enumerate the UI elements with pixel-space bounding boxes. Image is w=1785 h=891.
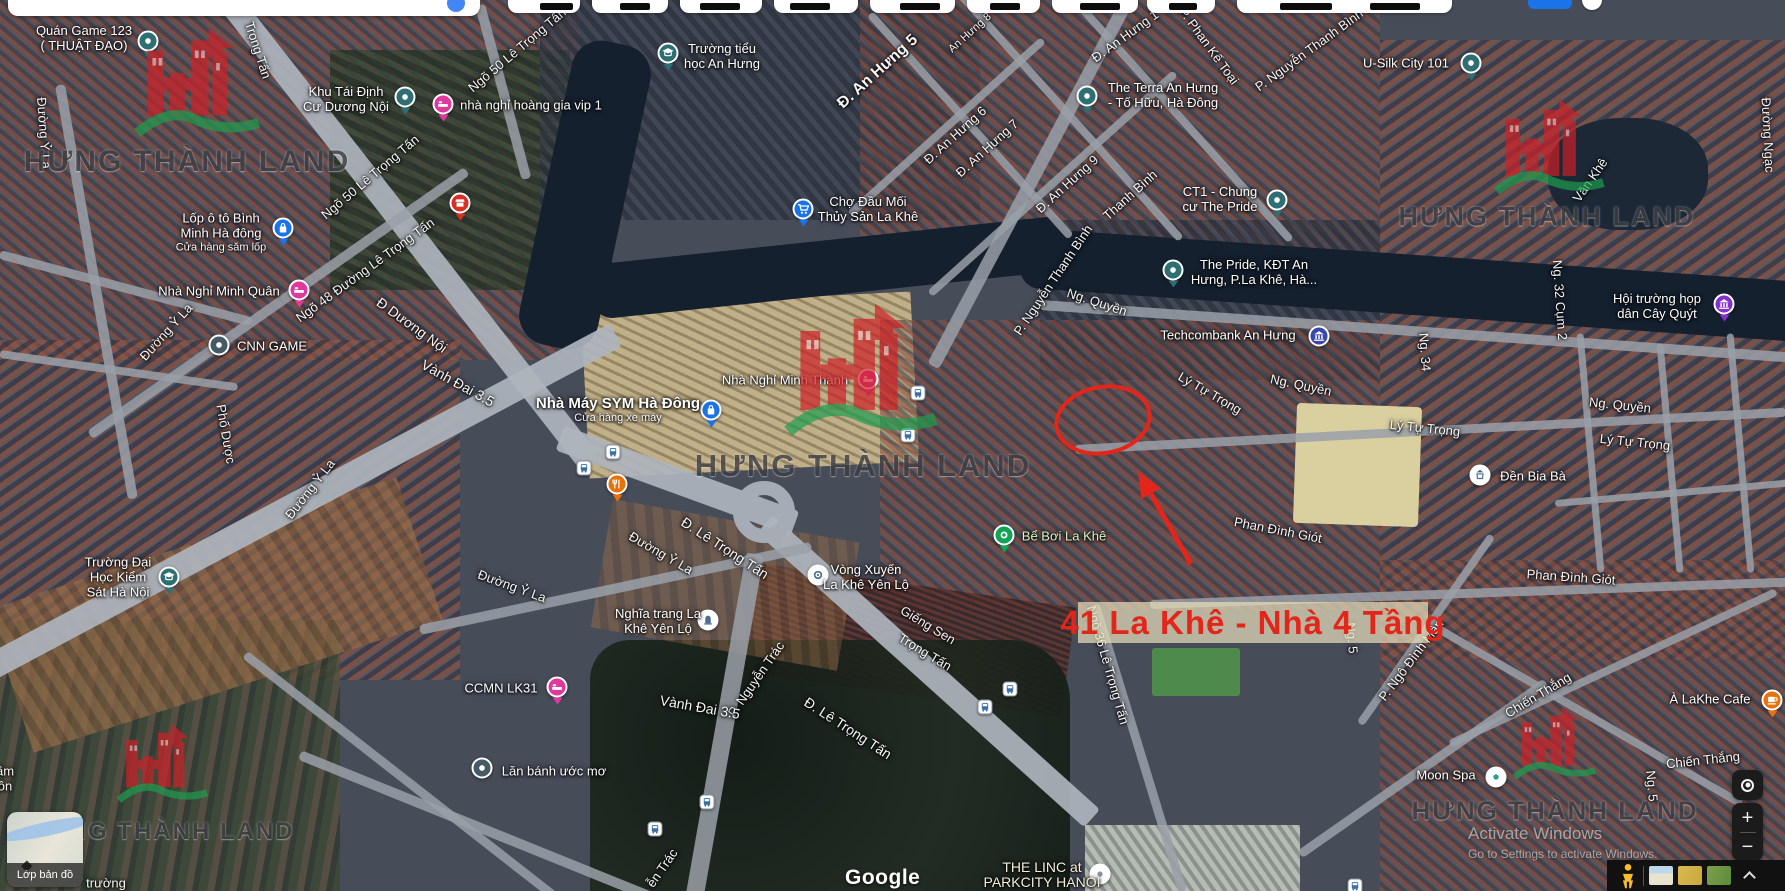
bus-stop-icon[interactable] bbox=[700, 795, 715, 810]
place-pin-icon[interactable] bbox=[395, 87, 416, 108]
poi-label-nha-may-sym-ha-dong[interactable]: Nhà Máy SYM Hà ĐôngCửa hàng xe máy bbox=[536, 396, 700, 426]
top-chip[interactable] bbox=[592, 0, 668, 13]
google-logo[interactable]: Google bbox=[845, 866, 920, 890]
place-dot-icon[interactable] bbox=[209, 335, 230, 356]
top-chip[interactable] bbox=[774, 0, 858, 13]
poi-label-cnn-game[interactable]: CNN GAME bbox=[237, 339, 307, 354]
poi-label-lop-o-to-binh-minh[interactable]: Lốp ô tô BìnhMinh Hà đôngCửa hàng săm lố… bbox=[176, 211, 267, 256]
top-chip[interactable] bbox=[1147, 0, 1215, 13]
poi-label-ct1-chung-cu-the-pride[interactable]: CT1 - Chungcư The Pride bbox=[1183, 184, 1258, 214]
street-label: Ng. 34 bbox=[1416, 332, 1434, 371]
lodging-icon[interactable] bbox=[858, 369, 879, 390]
street-label: Đường Ỷ La bbox=[476, 567, 548, 606]
bus-stop-icon[interactable] bbox=[901, 428, 916, 443]
poi-label-the-linc-parkcity[interactable]: THE LINC atPARKCITY HANOI bbox=[984, 860, 1101, 890]
place-pin-icon[interactable] bbox=[1163, 260, 1184, 281]
place-pin-icon[interactable] bbox=[1077, 86, 1098, 107]
top-button[interactable] bbox=[1582, 0, 1602, 10]
top-chip-active[interactable] bbox=[1528, 0, 1572, 9]
bus-stop-icon[interactable] bbox=[1003, 682, 1018, 697]
poi-label-the-pride-kdt-an-hung[interactable]: The Pride, KĐT AnHưng, P.La Khê, Hà... bbox=[1191, 257, 1317, 287]
school-icon[interactable] bbox=[159, 567, 180, 588]
roundabout bbox=[733, 481, 795, 543]
imagery-thumbnail[interactable] bbox=[1649, 866, 1673, 885]
divider bbox=[1643, 866, 1644, 886]
bank-icon[interactable] bbox=[1309, 326, 1330, 347]
layers-thumbnail bbox=[7, 812, 83, 845]
poi-label-nghia-trang-la-khe-yen-lo[interactable]: Nghĩa trang LaKhê Yên Lộ bbox=[615, 606, 701, 636]
my-location-button[interactable] bbox=[1732, 770, 1763, 800]
temple-icon[interactable] bbox=[1470, 465, 1491, 486]
poi-label-a-lakhe-cafe[interactable]: À LaKhe Cafe bbox=[1670, 692, 1751, 707]
pegman-icon[interactable] bbox=[1619, 863, 1637, 889]
lodging-icon[interactable] bbox=[547, 677, 568, 698]
search-bar[interactable] bbox=[8, 0, 480, 16]
map-texture bbox=[1152, 648, 1240, 696]
shopping-icon[interactable] bbox=[273, 218, 294, 239]
bus-stop-icon[interactable] bbox=[577, 461, 592, 476]
bus-stop-icon[interactable] bbox=[1348, 879, 1363, 891]
community-hall-icon[interactable] bbox=[1714, 294, 1735, 315]
imagery-thumbnail[interactable] bbox=[1707, 866, 1731, 885]
lodging-icon[interactable] bbox=[289, 280, 310, 301]
cafe-icon[interactable] bbox=[1762, 690, 1783, 711]
street-label: Ng. 5 bbox=[1643, 770, 1661, 802]
layers-label: Lớp bản đồ bbox=[7, 863, 83, 887]
poi-label-nha-nghi-minh-thanh[interactable]: Nhà Nghỉ Minh Thành bbox=[722, 373, 848, 388]
poi-label-moon-spa[interactable]: Moon Spa bbox=[1416, 768, 1475, 783]
layers-button[interactable]: ◆ Lớp bản đồ bbox=[7, 812, 83, 887]
activate-windows-text: Activate Windows bbox=[1468, 824, 1602, 844]
street-label: ầm bbox=[0, 764, 14, 779]
top-chip[interactable] bbox=[1237, 0, 1452, 13]
store-icon[interactable] bbox=[450, 193, 471, 214]
spa-icon[interactable] bbox=[1486, 767, 1507, 788]
shopping-icon[interactable] bbox=[701, 400, 722, 421]
satellite-map[interactable]: Đường Ỷ LaTrọng TấnNgõ 50 Lê Trọng TấnNg… bbox=[0, 0, 1785, 891]
activate-windows-subtext: Go to Settings to activate Windows. bbox=[1468, 847, 1657, 861]
poi-label-be-boi-la-khe[interactable]: Bể Bơi La Khê bbox=[1022, 529, 1106, 544]
poi-label-u-silk-city-101[interactable]: U-Silk City 101 bbox=[1363, 56, 1449, 71]
top-chip[interactable] bbox=[870, 0, 955, 13]
place-dot-icon[interactable] bbox=[472, 758, 493, 779]
place-pin-icon[interactable] bbox=[138, 31, 159, 52]
map-texture bbox=[1548, 118, 1708, 230]
zoom-divider bbox=[1740, 832, 1756, 833]
imagery-thumbnail[interactable] bbox=[1678, 866, 1702, 885]
street-label: ôn bbox=[0, 779, 12, 794]
bus-stop-icon[interactable] bbox=[978, 700, 993, 715]
poi-label-lan-banh-uoc-mo[interactable]: Lăn bánh ước mơ bbox=[502, 764, 607, 779]
poi-label-the-terra-an-hung[interactable]: The Terra An Hưng- Tố Hữu, Hà Đông bbox=[1108, 80, 1218, 110]
bus-stop-icon[interactable] bbox=[648, 822, 663, 837]
zoom-in-button[interactable]: + bbox=[1732, 808, 1763, 828]
lodging-icon[interactable] bbox=[433, 94, 454, 115]
place-pin-icon[interactable] bbox=[1461, 53, 1482, 74]
poi-label-den-bia-ba[interactable]: Đền Bia Bà bbox=[1500, 469, 1566, 484]
imagery-bar[interactable] bbox=[1607, 860, 1785, 891]
market-icon[interactable] bbox=[793, 199, 814, 220]
top-chip[interactable] bbox=[508, 0, 580, 13]
poi-label-ccmn-lk31[interactable]: CCMN LK31 bbox=[465, 681, 538, 696]
poi-label-cho-dau-moi-thuy-san-la-khe[interactable]: Chợ Đầu MốiThủy Sản La Khê bbox=[818, 194, 918, 224]
poi-label-khu-tai-dinh-cu-duong-noi[interactable]: Khu Tái ĐịnhCư Dương Nội bbox=[303, 84, 389, 114]
school-icon[interactable] bbox=[658, 43, 679, 64]
annotation-callout: 41 La Khê - Nhà 4 Tầng bbox=[1078, 602, 1428, 643]
swimming-pool-icon[interactable] bbox=[994, 525, 1015, 546]
top-chip[interactable] bbox=[1052, 0, 1138, 13]
poi-label-nha-nghi-hoang-gia-vip-1[interactable]: nhà nghỉ hoàng gia vip 1 bbox=[460, 98, 602, 113]
poi-label-truong-tieu-hoc-an-hung[interactable]: Trường tiểuhọc An Hưng bbox=[684, 41, 760, 71]
poi-label-truong-dai-hoc-kiem-sat-ha-noi[interactable]: Trường ĐạiHọc KiểmSát Hà Nội bbox=[85, 555, 152, 600]
collapse-chevron-icon[interactable] bbox=[1743, 871, 1756, 884]
poi-label-vong-xuyen-la-khe-yen-lo[interactable]: Vòng XuyếnLa Khê Yên Lộ bbox=[823, 562, 909, 592]
my-location-icon bbox=[1741, 779, 1754, 792]
poi-label-quan-game-123[interactable]: Quán Game 123( THUẬT ĐẠO) bbox=[36, 23, 132, 53]
zoom-out-button[interactable]: − bbox=[1732, 837, 1763, 857]
poi-label-nha-nghi-minh-quan[interactable]: Nhà Nghỉ Minh Quân bbox=[158, 284, 279, 299]
bus-stop-icon[interactable] bbox=[911, 386, 926, 401]
restaurant-icon[interactable] bbox=[607, 474, 628, 495]
place-pin-icon[interactable] bbox=[1267, 190, 1288, 211]
poi-label-hoi-truong-hop-dan-cay-quyt[interactable]: Hội trường họpdân Cây Quýt bbox=[1613, 291, 1701, 321]
top-chip[interactable] bbox=[967, 0, 1040, 13]
zoom-controls[interactable]: + − bbox=[1732, 803, 1763, 861]
map-texture bbox=[1085, 825, 1300, 891]
top-chip[interactable] bbox=[680, 0, 762, 13]
street-label: trường bbox=[86, 876, 126, 891]
bus-stop-icon[interactable] bbox=[606, 445, 621, 460]
poi-label-techcombank-an-hung[interactable]: Techcombank An Hưng bbox=[1160, 328, 1295, 343]
